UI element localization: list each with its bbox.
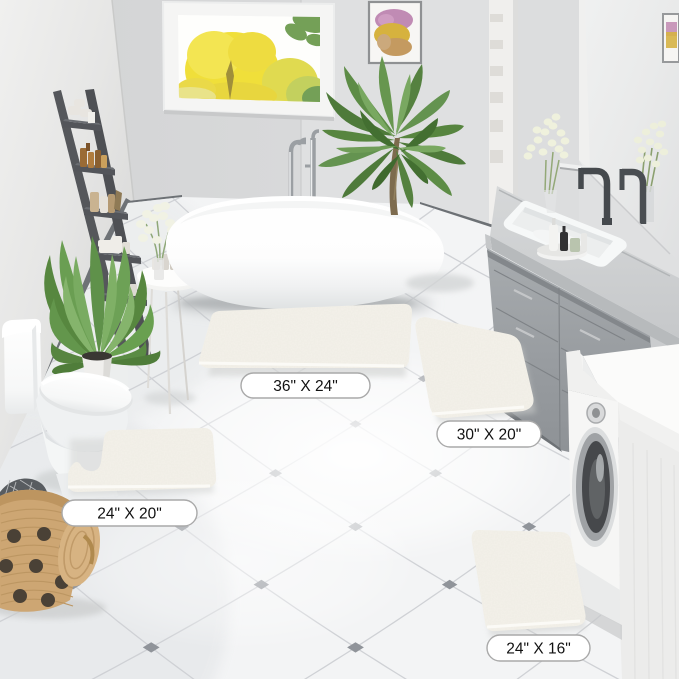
svg-text:24" X 16": 24" X 16" <box>506 641 570 658</box>
svg-text:24" X 20": 24" X 20" <box>97 506 161 523</box>
svg-text:36" X 24": 36" X 24" <box>273 378 337 395</box>
svg-text:30" X 20": 30" X 20" <box>457 427 521 444</box>
